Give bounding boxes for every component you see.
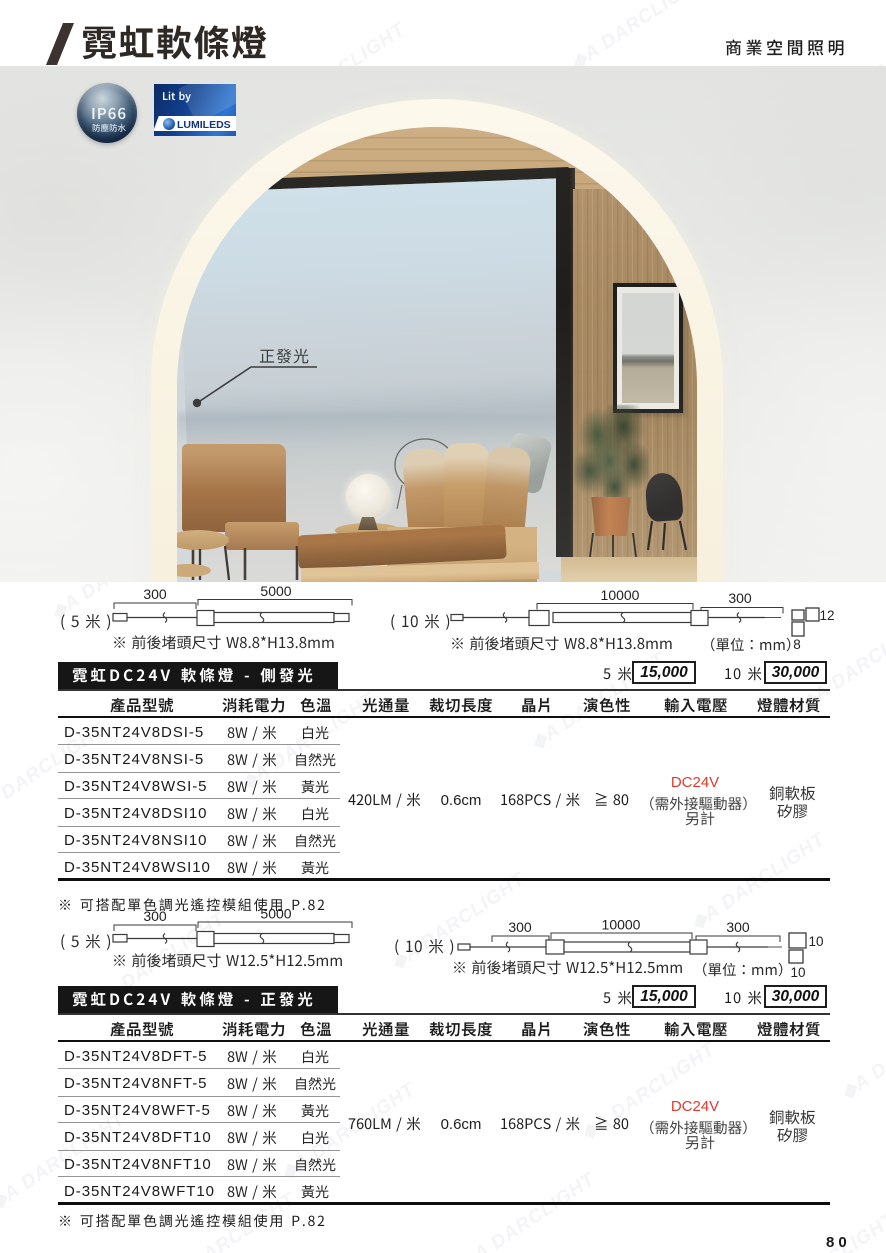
svg-text:10000: 10000: [601, 587, 640, 603]
svg-text:300: 300: [728, 590, 752, 606]
svg-text:300: 300: [726, 919, 750, 935]
svg-text:300: 300: [508, 919, 532, 935]
svg-text:10: 10: [808, 934, 823, 949]
svg-text:12: 12: [819, 608, 834, 623]
svg-text:10000: 10000: [602, 917, 641, 933]
